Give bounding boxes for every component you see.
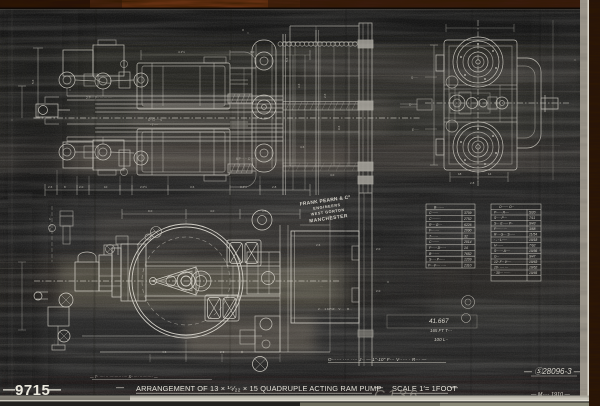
svg-text:3·6: 3·6 xyxy=(297,83,301,88)
svg-text:10/56: 10/56 xyxy=(529,249,537,253)
svg-text:1209: 1209 xyxy=(464,258,472,262)
svg-text:2·9: 2·9 xyxy=(220,350,225,354)
svg-text:3709: 3709 xyxy=(464,211,472,215)
svg-text:11/54: 11/54 xyxy=(529,233,537,237)
svg-text:3·0: 3·0 xyxy=(250,50,255,54)
svg-text:12· F·· V····: 12· F·· V···· xyxy=(494,260,511,264)
svg-text:B·······: B······· xyxy=(429,252,439,256)
svg-text:· T····: · T···· xyxy=(150,123,158,127)
svg-text:D··G·····s: D··G·····s xyxy=(148,118,162,122)
svg-text:10/62: 10/62 xyxy=(529,266,537,270)
svg-text:9·6: 9·6 xyxy=(337,125,341,130)
svg-text:9/43: 9/43 xyxy=(529,222,536,226)
svg-text:2014: 2014 xyxy=(463,240,472,244)
svg-text:— T· ···· ·· ········· ···· S·: — T· ···· ·· ········· ···· S······ ····… xyxy=(89,375,158,379)
svg-text:· - · L·····: · - · L····· xyxy=(494,238,507,242)
svg-text:10/65: 10/65 xyxy=(529,271,537,275)
svg-text:4·6: 4·6 xyxy=(300,145,305,149)
svg-text:· 30··· ······: · 30··· ······ xyxy=(494,271,510,275)
svg-text:10: 10 xyxy=(104,185,108,189)
svg-text:2752: 2752 xyxy=(463,217,472,221)
svg-text:14: 14 xyxy=(464,246,468,250)
svg-text:2090: 2090 xyxy=(463,229,472,233)
svg-text:18: 18 xyxy=(458,172,462,176)
svg-text:O······ O··: O······ O·· xyxy=(499,205,514,209)
svg-text:S······ A····: S······ A···· xyxy=(494,249,510,253)
svg-text:3/88: 3/88 xyxy=(529,227,536,231)
svg-text:4·1½: 4·1½ xyxy=(178,50,185,54)
svg-text:F······ ···: F······ ··· xyxy=(494,227,507,231)
svg-text:100 L··: 100 L·· xyxy=(434,337,449,342)
svg-text:32: 32 xyxy=(464,234,468,238)
svg-text:G··: G·· xyxy=(494,255,499,259)
svg-text:2·6: 2·6 xyxy=(323,93,327,98)
svg-text:41.667: 41.667 xyxy=(429,318,449,325)
svg-text:2·0: 2·0 xyxy=(376,247,381,251)
svg-text:4·6: 4·6 xyxy=(162,350,167,354)
svg-text:F·······: F······· xyxy=(429,229,439,233)
svg-text:D······: D······ xyxy=(409,103,418,107)
svg-text:1½·S···· P···: 1½·S···· P··· xyxy=(48,215,52,232)
svg-text:···· ·····: ···· ····· xyxy=(52,340,56,350)
svg-text:2·0: 2·0 xyxy=(376,289,381,293)
svg-text:4·0: 4·0 xyxy=(330,173,335,177)
svg-text:2·8: 2·8 xyxy=(272,185,277,189)
svg-text:10/63: 10/63 xyxy=(529,260,537,264)
svg-text:7/92: 7/92 xyxy=(529,244,536,248)
svg-text:T······: T······ xyxy=(429,234,438,238)
svg-text:—: — xyxy=(3,382,15,396)
svg-text:4·0: 4·0 xyxy=(210,209,215,213)
svg-text:10· ···· ···: 10· ···· ··· xyxy=(494,266,508,270)
svg-text:H······: H······ xyxy=(494,244,503,248)
svg-text:B·······: B······· xyxy=(434,205,444,209)
svg-text:R··· G··· S·····: R··· G··· S····· xyxy=(494,233,515,237)
svg-text:14: 14 xyxy=(488,172,492,176)
svg-text:7652: 7652 xyxy=(464,252,472,256)
svg-text:3·6: 3·6 xyxy=(262,209,267,213)
svg-text:S···· P···: S···· P··· xyxy=(494,216,507,220)
svg-text:2 P··· P·· ··· ··· ····: 2 P··· P·· ··· ··· ···· xyxy=(86,96,112,100)
svg-text:5·6: 5·6 xyxy=(285,57,289,62)
svg-text:— Ⓢ28096-3 —: — Ⓢ28096-3 — xyxy=(523,367,583,376)
svg-text:R··· G···: R··· G··· xyxy=(429,223,442,227)
svg-text:S···· P·····: S···· P····· xyxy=(429,258,445,262)
svg-text:3·4½: 3·4½ xyxy=(240,185,247,189)
svg-text:2·6: 2·6 xyxy=(316,243,321,247)
svg-text:S··· E····· P··: S··· E····· P·· xyxy=(494,222,513,226)
svg-text:2·0: 2·0 xyxy=(79,185,84,189)
svg-text:165 FT T···: 165 FT T··· xyxy=(430,328,452,333)
svg-text:E·····: E····· xyxy=(412,128,419,132)
svg-text:C········: C········ xyxy=(429,217,440,221)
svg-text:2310: 2310 xyxy=(463,263,472,267)
svg-text:C······: C······ xyxy=(429,211,438,215)
svg-text:2·0½: 2·0½ xyxy=(140,185,147,189)
svg-text:—: — xyxy=(450,383,458,392)
svg-text:F····· D·····: F····· D····· xyxy=(429,246,446,250)
svg-text:—: — xyxy=(116,383,124,392)
svg-text:10/18: 10/18 xyxy=(529,238,537,242)
svg-text:5·6: 5·6 xyxy=(31,79,35,84)
svg-text:—: — xyxy=(49,382,61,396)
svg-text:S·····: S····· xyxy=(411,76,418,80)
svg-text:P····· R····: P····· R···· xyxy=(494,211,509,215)
svg-text:5/20: 5/20 xyxy=(529,211,536,215)
svg-text:P···V···· ····: P···V···· ···· xyxy=(428,263,446,267)
svg-text:9·0: 9·0 xyxy=(148,209,153,213)
svg-text:7/11: 7/11 xyxy=(529,216,535,220)
svg-text:9/47: 9/47 xyxy=(529,255,536,259)
svg-text:2·6: 2·6 xyxy=(48,185,53,189)
svg-text:···: ··· xyxy=(320,284,323,288)
svg-text:ARRANGEMENT OF 13 × ¹⁵⁄₂₂ × 15: ARRANGEMENT OF 13 × ¹⁵⁄₂₂ × 15 QUADRUPLE… xyxy=(136,384,381,393)
svg-text:O······ ···· ···· J·· — 1"-1: O······ ···· ···· J·· — 1"-10" F··· V···… xyxy=(328,357,427,362)
svg-text:C·······: C······· xyxy=(429,240,439,244)
svg-text:2·· · 1·10½F· · V···· · R···: 2·· · 1·10½F· · V···· · R··· xyxy=(318,307,352,311)
svg-text:3·6: 3·6 xyxy=(190,185,195,189)
svg-text:6226: 6226 xyxy=(464,223,472,227)
